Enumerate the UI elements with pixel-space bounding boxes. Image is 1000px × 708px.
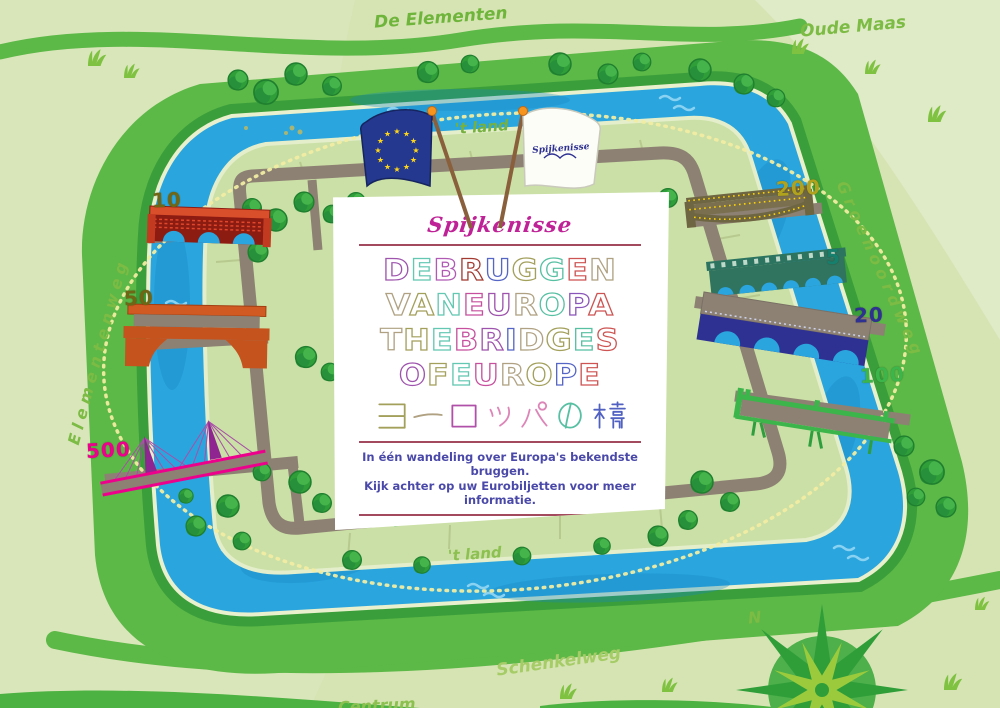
jp-glyph-no [559, 403, 581, 427]
jp-glyph-yo [379, 404, 404, 427]
info-panel: Spijkenisse DEBRUGGENVANEUROPATHEBRIDGES… [331, 192, 669, 530]
map-poster: Spijkenisse DEBRUGGENVANEUROPATHEBRIDGES… [0, 0, 1000, 708]
area-label-t-land-top: 't land [454, 116, 509, 138]
jp-glyph-pa [522, 402, 546, 426]
title-lines: DEBRUGGENVANEUROPATHEBRIDGESOFEUROPE [331, 253, 669, 393]
bridge-200-label: 200 [775, 175, 821, 201]
compass-north-label: N [747, 607, 762, 627]
bridge-500-label: 500 [85, 437, 131, 463]
bridge-10 [147, 206, 272, 247]
japanese-title [331, 396, 669, 434]
divider [359, 441, 641, 443]
bridge-5-label: 5 [826, 245, 841, 269]
jp-glyph-tsu [490, 408, 509, 426]
bridge-20-label: 20 [854, 302, 885, 327]
info-line-2: Kijk achter op uw Eurobiljetten voor mee… [331, 479, 669, 507]
jp-glyph-hashi [594, 402, 625, 427]
jp-glyph-ro [452, 405, 475, 426]
bridge-50-label: 50 [124, 285, 155, 310]
bridge-10-label: 10 [152, 187, 183, 212]
bridge-100-label: 100 [859, 362, 905, 388]
city-title: Spijkenisse [329, 212, 670, 237]
area-label-t-land-bottom: 't land [447, 543, 502, 565]
info-line-1: In één wandeling over Europa's bekendste… [331, 450, 669, 478]
jp-glyph-chouon [414, 414, 442, 417]
divider [359, 244, 641, 246]
